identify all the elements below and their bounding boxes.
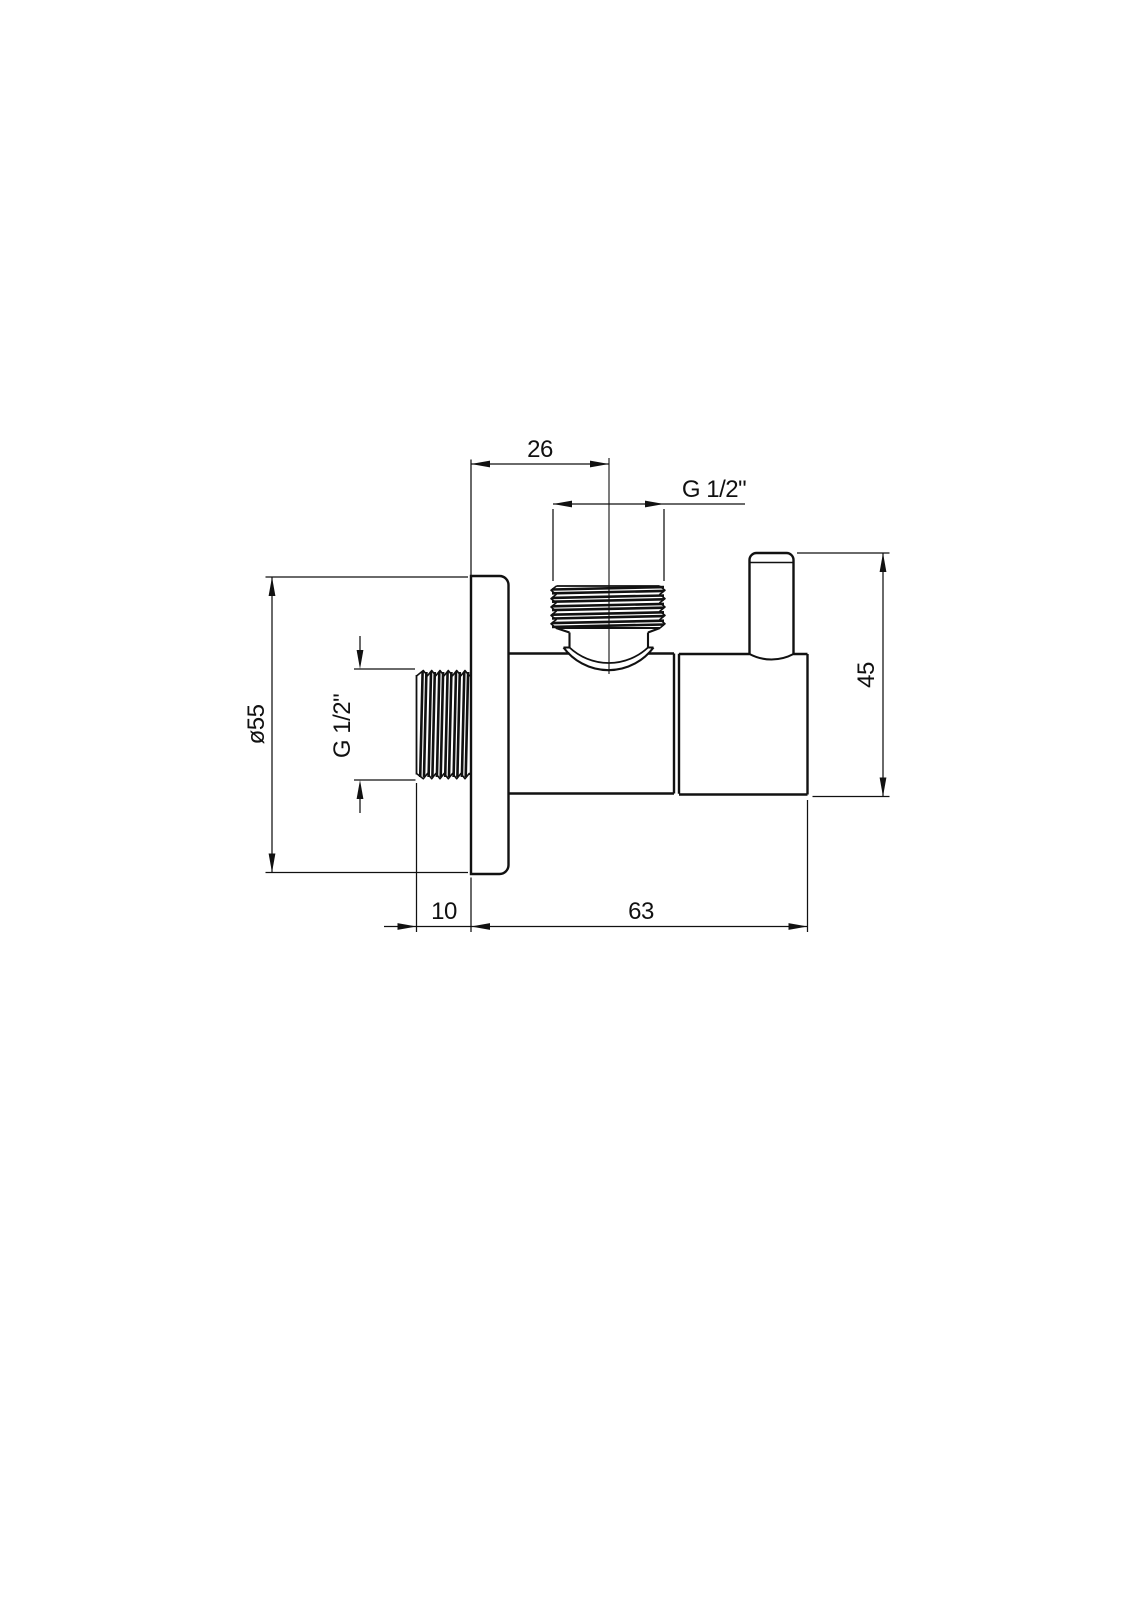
dim-45-arrow-top <box>880 553 887 572</box>
dim-label-10: 10 <box>431 898 457 925</box>
dim-label-plate-diameter: ø55 <box>243 704 270 744</box>
inlet-thread-ridges <box>420 672 468 777</box>
dim-label-45: 45 <box>853 662 880 688</box>
dimension-10-63: 10 63 <box>384 783 808 932</box>
dimension-outlet-thread: G 1/2" <box>553 476 746 581</box>
technical-drawing-angle-valve: 26 G 1/2" ø55 G 1/2" <box>0 0 1131 1600</box>
dim-dia55-arrow-top <box>269 577 276 596</box>
inlet-thread <box>417 671 472 779</box>
wall-plate-outline <box>471 576 509 874</box>
dimension-inlet-thread: G 1/2" <box>329 636 416 813</box>
outlet-thread-ridges <box>552 587 664 627</box>
dim-label-inlet-thread: G 1/2" <box>329 694 356 758</box>
dim-g12-top-arrow-left <box>553 501 572 508</box>
dimension-45: 45 <box>797 553 890 797</box>
dim-label-63: 63 <box>628 898 654 925</box>
dim-dia55-arrow-bottom <box>269 854 276 873</box>
dim-26-arrow-left <box>471 461 490 468</box>
dim-63-arrow-right <box>789 923 808 930</box>
dim-10-arrow-left <box>398 923 417 930</box>
dim-label-outlet-thread: G 1/2" <box>682 476 746 503</box>
handle-outline <box>750 553 794 654</box>
valve-body-right-section <box>679 654 808 795</box>
page: 26 G 1/2" ø55 G 1/2" <box>0 0 1131 1600</box>
dim-26-arrow-right <box>590 461 609 468</box>
outlet-thread <box>551 586 665 670</box>
dim-g12-left-extension-lines <box>354 669 416 780</box>
dim-63-arrow-left <box>471 923 490 930</box>
valve-body <box>508 654 808 795</box>
dim-g12-left-arrow-bottom <box>357 780 364 799</box>
outlet-neck <box>556 628 660 648</box>
handle-base-fillet <box>750 654 794 659</box>
wall-plate <box>471 576 509 874</box>
dim-g12-left-arrow-top <box>357 650 364 669</box>
dimension-26: 26 <box>471 436 609 575</box>
dim-45-arrow-bottom <box>880 778 887 797</box>
valve-body-left-section <box>508 654 674 794</box>
dim-label-26: 26 <box>527 436 553 463</box>
dim-g12-top-arrow-right <box>645 501 664 508</box>
valve-handle <box>750 553 794 659</box>
